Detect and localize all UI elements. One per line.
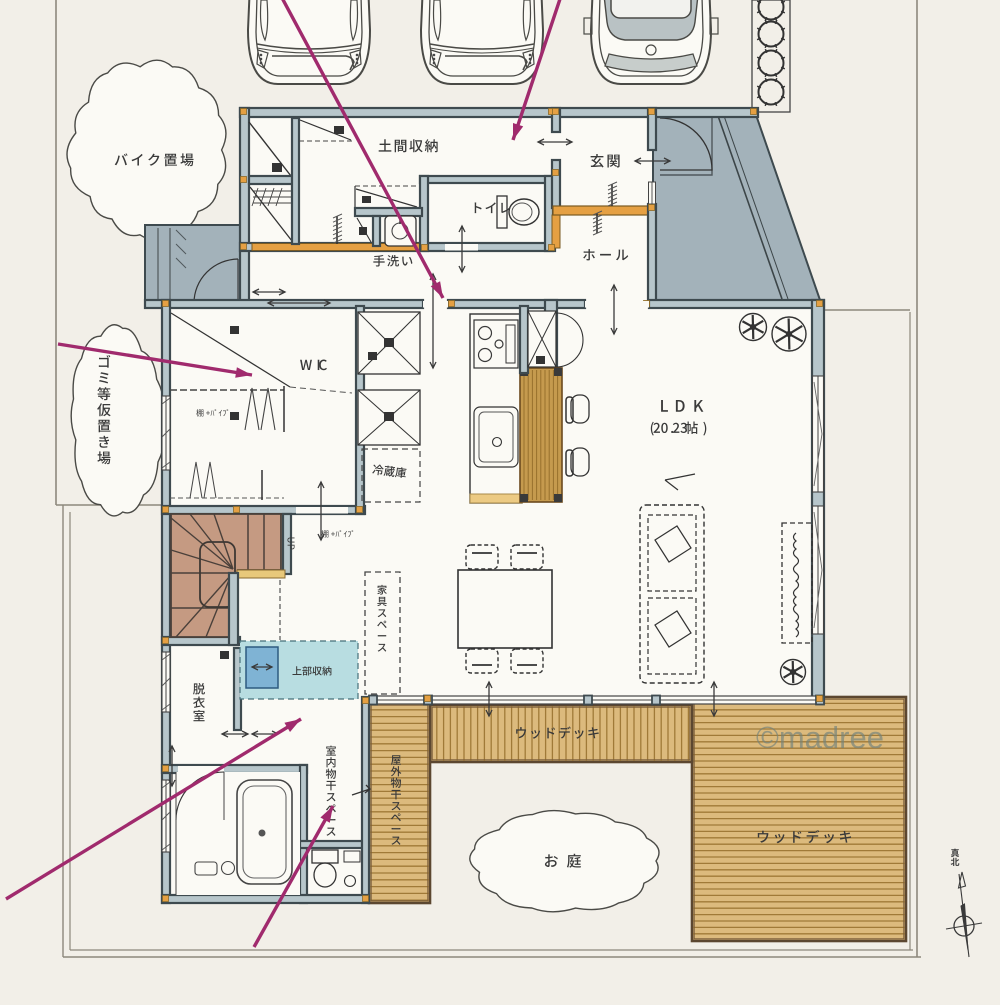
svg-text:©madree: ©madree	[756, 720, 884, 755]
